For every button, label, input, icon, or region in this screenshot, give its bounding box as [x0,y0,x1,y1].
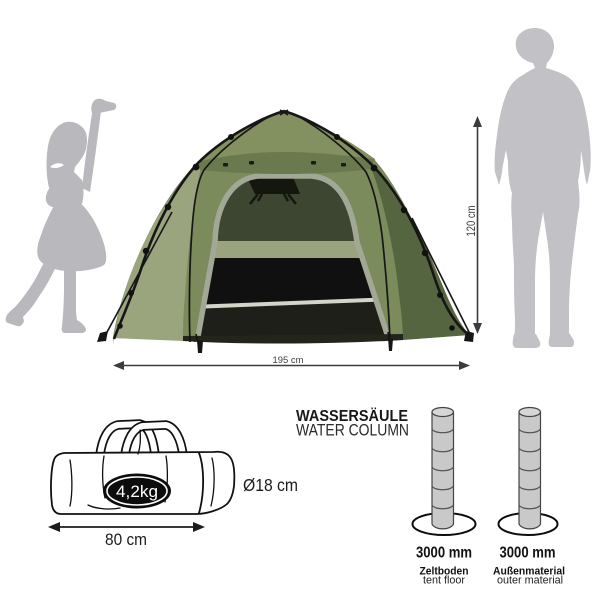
svg-text:4,2kg: 4,2kg [116,483,158,501]
svg-text:195 cm: 195 cm [273,355,304,366]
svg-text:3000 mm: 3000 mm [416,545,472,562]
svg-text:tent floor: tent floor [423,575,465,587]
svg-text:120 cm: 120 cm [464,206,478,237]
svg-text:Ø18 cm: Ø18 cm [243,475,298,495]
svg-text:3000 mm: 3000 mm [500,545,556,562]
svg-text:outer material: outer material [497,575,563,587]
svg-text:80 cm: 80 cm [105,530,147,549]
svg-text:WATER COLUMN: WATER COLUMN [296,422,409,440]
